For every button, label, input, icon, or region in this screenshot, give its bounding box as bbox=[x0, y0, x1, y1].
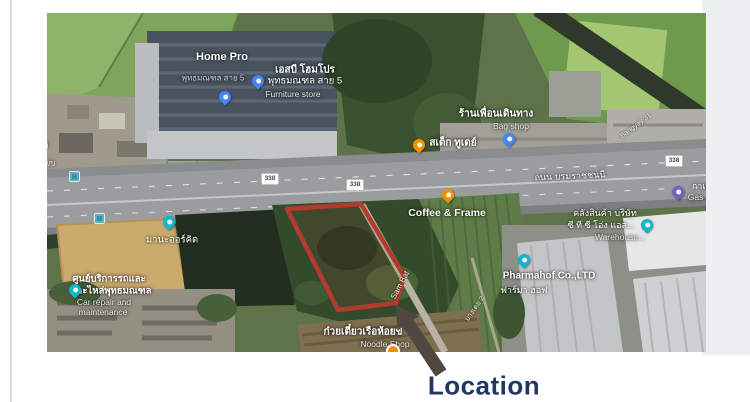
label-car-repair-eng1: Car repair and bbox=[77, 297, 131, 307]
label-gas-eng: Gas s. bbox=[688, 192, 706, 202]
label-noodle[interactable]: ก๋วยเตี๋ยวเรือห้อยขี bbox=[323, 325, 402, 340]
label-home-pro[interactable]: Home Pro bbox=[196, 51, 248, 63]
label-car-repair-eng2: maintenance bbox=[79, 307, 128, 317]
highway-marker-icon bbox=[69, 171, 80, 182]
label-edge-partial-2: เยบ bbox=[47, 157, 56, 170]
page-edge-line bbox=[10, 0, 12, 402]
label-furniture-line2: พุทธมณฑล สาย 5 bbox=[268, 74, 342, 89]
satellite-terrain bbox=[47, 13, 706, 352]
label-warehouse-eng: Warehouse... bbox=[595, 232, 645, 242]
satellite-map[interactable]: 338 338 338 Home Pro พุทธมณฑล สาย 5 เอสบ… bbox=[47, 13, 706, 352]
label-bag-shop[interactable]: ร้านเพื่อนเดินทาง bbox=[459, 107, 534, 122]
right-margin-panel bbox=[702, 0, 750, 355]
label-coffee-frame[interactable]: Coffee & Frame bbox=[408, 207, 486, 219]
label-steak[interactable]: สเต็ก ทูเดย์ bbox=[429, 136, 476, 151]
label-bag-shop-eng: Bag shop bbox=[493, 121, 529, 131]
label-gas-line1[interactable]: กาแ bbox=[692, 179, 706, 193]
noodle-shop-pin[interactable] bbox=[386, 344, 400, 352]
label-home-pro-sub: พุทธมณฑล สาย 5 bbox=[182, 72, 245, 85]
label-edge-partial-1: ที bbox=[47, 140, 48, 153]
route-338-shield: 338 bbox=[346, 179, 364, 191]
location-caption: Location bbox=[428, 371, 540, 402]
label-furniture-eng: Furniture store bbox=[265, 89, 320, 99]
label-warehouse-line2: ซี ที ซี โอ่ง แอส... bbox=[568, 218, 635, 232]
label-pharmahof[interactable]: Pharmahof Co.,LTD bbox=[503, 271, 596, 282]
route-338-shield: 338 bbox=[261, 173, 279, 185]
label-orchid[interactable]: มานะออร์คิด bbox=[146, 233, 198, 248]
highway-marker-icon bbox=[94, 213, 105, 224]
route-338-shield: 338 bbox=[665, 155, 683, 167]
label-pharmahof-thai: ฟาร์มา ฮอฟ bbox=[500, 283, 547, 297]
label-noodle-eng: Noodle Shop bbox=[360, 339, 409, 349]
